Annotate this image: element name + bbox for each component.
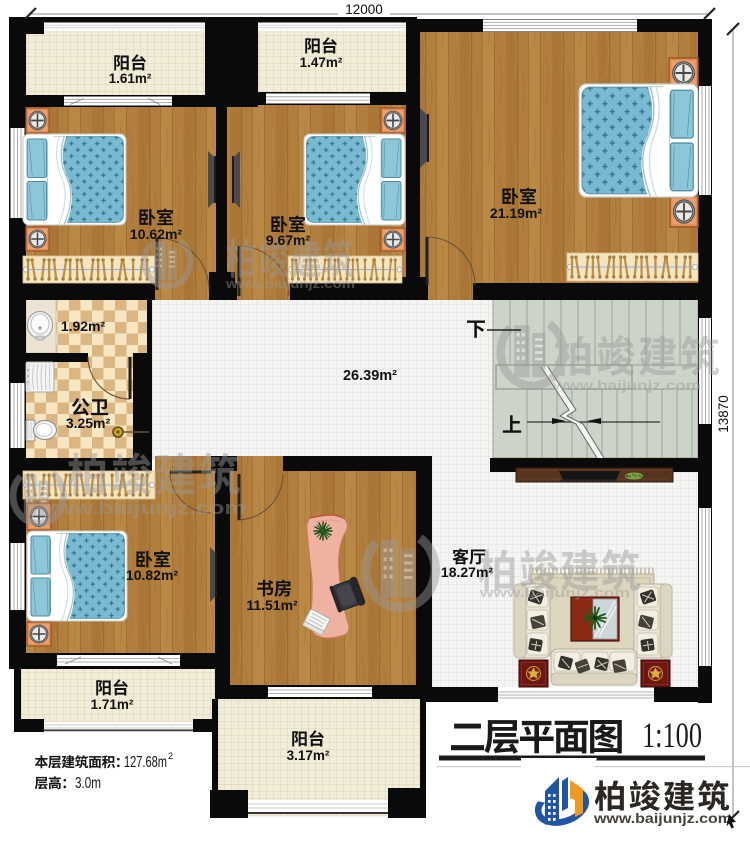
svg-text:13870: 13870 bbox=[716, 395, 731, 433]
svg-text:1.47m²: 1.47m² bbox=[300, 55, 343, 70]
svg-text:www.baijunjz.com: www.baijunjz.com bbox=[35, 497, 246, 518]
svg-text:2: 2 bbox=[168, 751, 173, 761]
svg-text:18.27m²: 18.27m² bbox=[441, 564, 493, 580]
svg-text:www.baijunjz.com: www.baijunjz.com bbox=[225, 276, 355, 291]
svg-text:3.17m²: 3.17m² bbox=[287, 748, 330, 763]
svg-text:12000: 12000 bbox=[345, 2, 383, 17]
svg-text:9.67m²: 9.67m² bbox=[266, 232, 311, 248]
svg-text:www.baijunjz.com: www.baijunjz.com bbox=[593, 811, 732, 826]
svg-text:1.92m²: 1.92m² bbox=[61, 318, 106, 334]
svg-text:10.82m²: 10.82m² bbox=[126, 567, 178, 583]
svg-text:26.39m²: 26.39m² bbox=[343, 368, 397, 384]
svg-text:21.19m²: 21.19m² bbox=[490, 205, 542, 221]
svg-text:127.68m: 127.68m bbox=[124, 754, 167, 771]
svg-text:www.baijunjz.com: www.baijunjz.com bbox=[479, 585, 630, 600]
svg-text:3.0m: 3.0m bbox=[75, 775, 101, 792]
svg-text:3.25m²: 3.25m² bbox=[66, 415, 111, 431]
svg-text:1:100: 1:100 bbox=[642, 715, 702, 755]
svg-text:10.62m²: 10.62m² bbox=[130, 226, 182, 242]
svg-text:1.61m²: 1.61m² bbox=[109, 71, 152, 86]
svg-text:1.71m²: 1.71m² bbox=[91, 697, 134, 712]
svg-text:www.baijunjz.com: www.baijunjz.com bbox=[552, 378, 701, 393]
svg-text:11.51m²: 11.51m² bbox=[246, 597, 298, 613]
